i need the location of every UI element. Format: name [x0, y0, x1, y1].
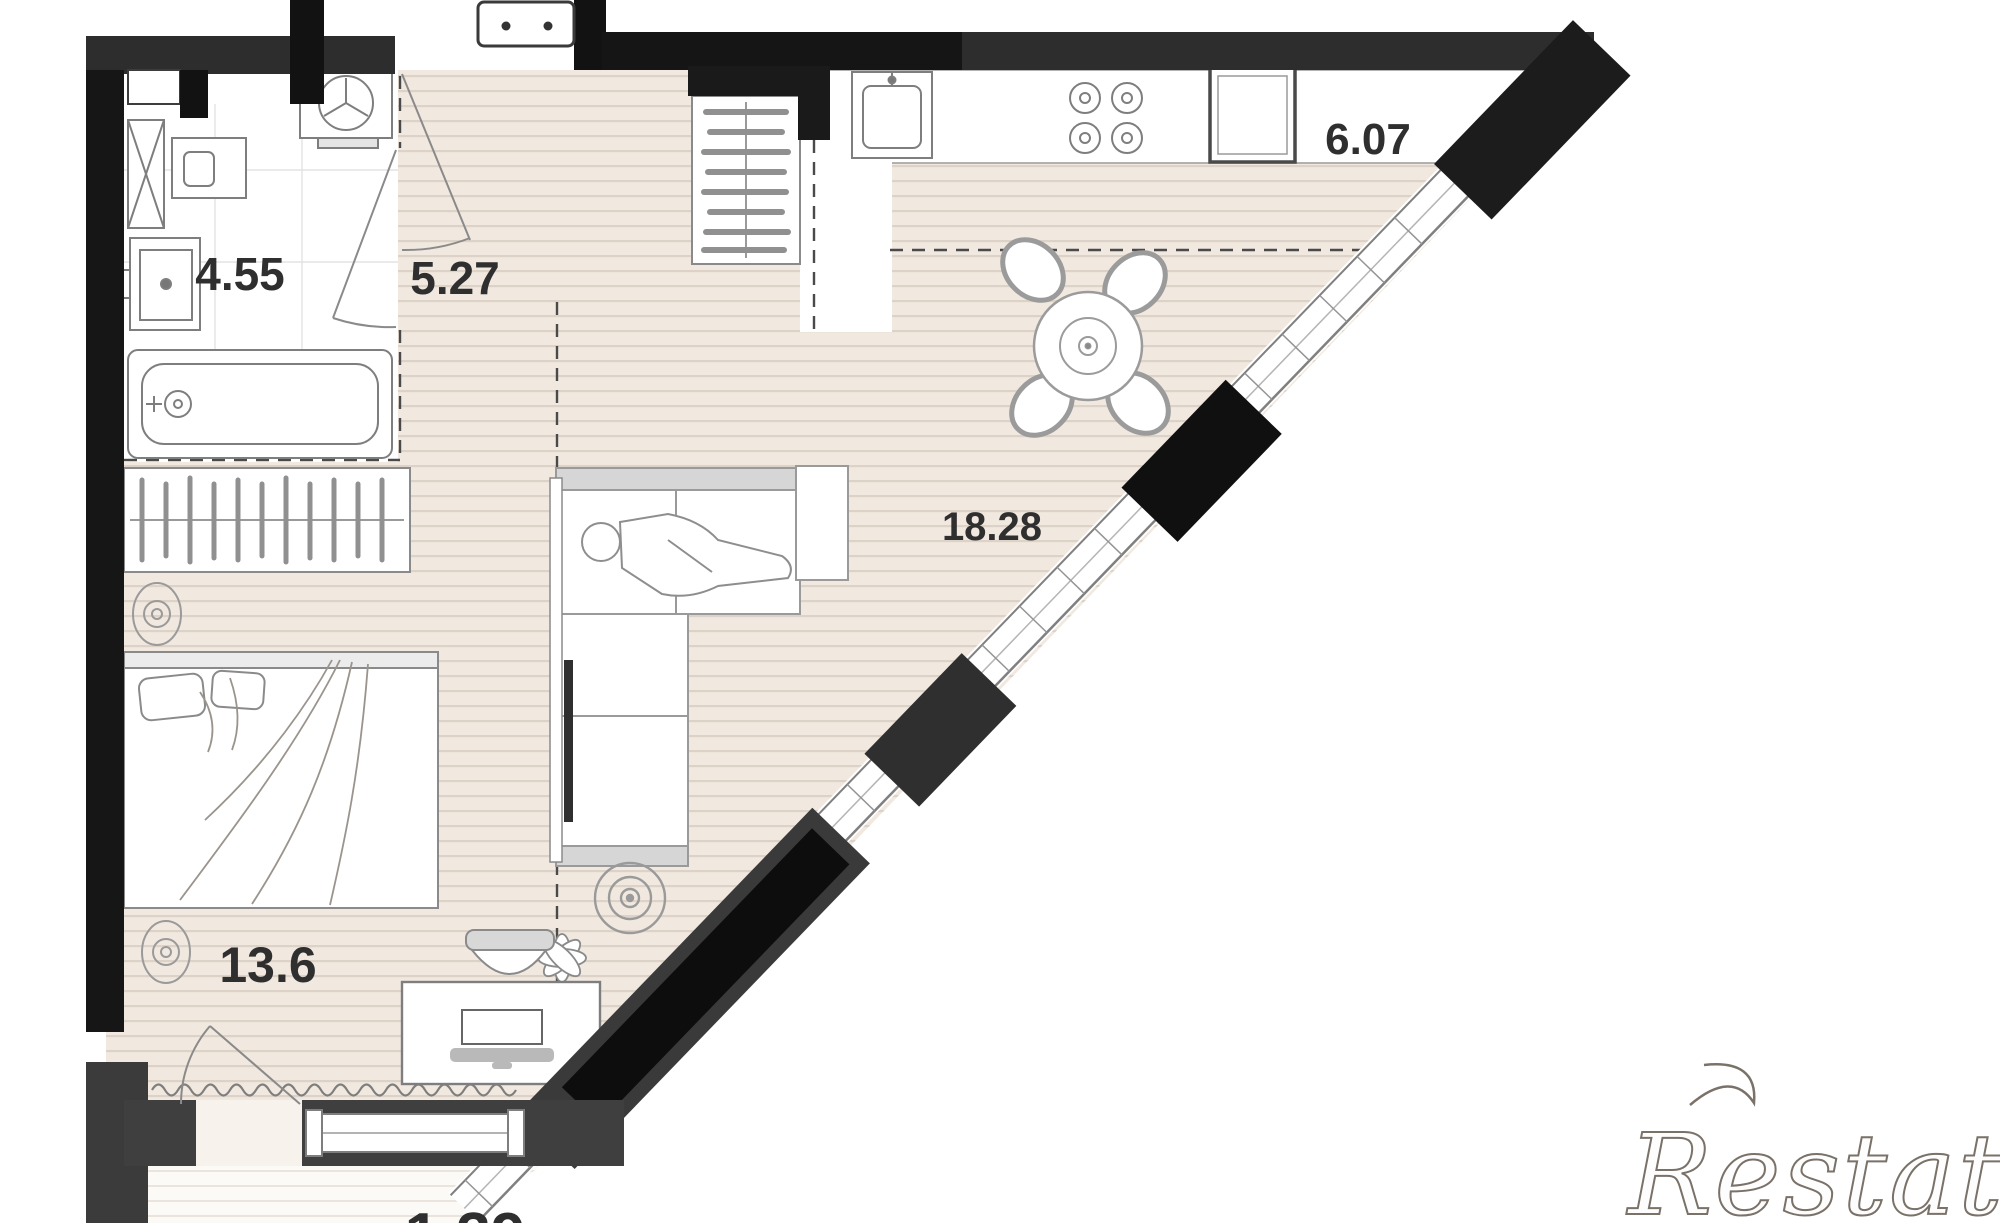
watermark-text: Restate — [1626, 1111, 2000, 1223]
kitchen-top-wall — [602, 32, 962, 70]
washing-machine-icon — [172, 138, 246, 198]
top-left-wall — [86, 36, 395, 74]
wall-jog — [290, 0, 324, 104]
floor-plan-drawing: 4.55 5.27 6.07 18.28 13.6 1.39 Restate — [0, 0, 2000, 1223]
kitchen-area-label: 6.07 — [1325, 115, 1411, 164]
left-outer-wall — [86, 70, 124, 1032]
bathtub-icon — [128, 350, 392, 458]
tv-icon — [564, 660, 573, 822]
balcony-area-label: 1.39 — [405, 1201, 526, 1223]
balcony-window-icon — [306, 1110, 524, 1156]
closet-wall — [688, 66, 830, 96]
bedroom-area-label: 13.6 — [219, 937, 316, 993]
wall-niche — [128, 70, 180, 104]
watermark: Restate — [1626, 1064, 2000, 1223]
side-table-icon — [796, 466, 848, 580]
double-bed-icon — [124, 652, 438, 908]
closet-hangers-icon — [692, 96, 800, 264]
ventilation-shaft-icon — [128, 120, 164, 228]
floor-plan-canvas: 4.55 5.27 6.07 18.28 13.6 1.39 Restate — [0, 0, 2000, 1223]
fridge-icon — [1210, 68, 1295, 162]
hallway-area-label: 5.27 — [410, 252, 500, 304]
bathroom-area-label: 4.55 — [195, 248, 285, 300]
wardrobe-hangers-icon — [124, 468, 410, 572]
watermark-swash — [1690, 1064, 1754, 1105]
electrical-cabinet-icon — [478, 2, 574, 46]
balcony-door-opening — [196, 1100, 302, 1166]
kitchen-sink-icon — [852, 72, 932, 158]
living-room-area-label: 18.28 — [942, 505, 1042, 549]
laptop-icon — [450, 1010, 554, 1069]
